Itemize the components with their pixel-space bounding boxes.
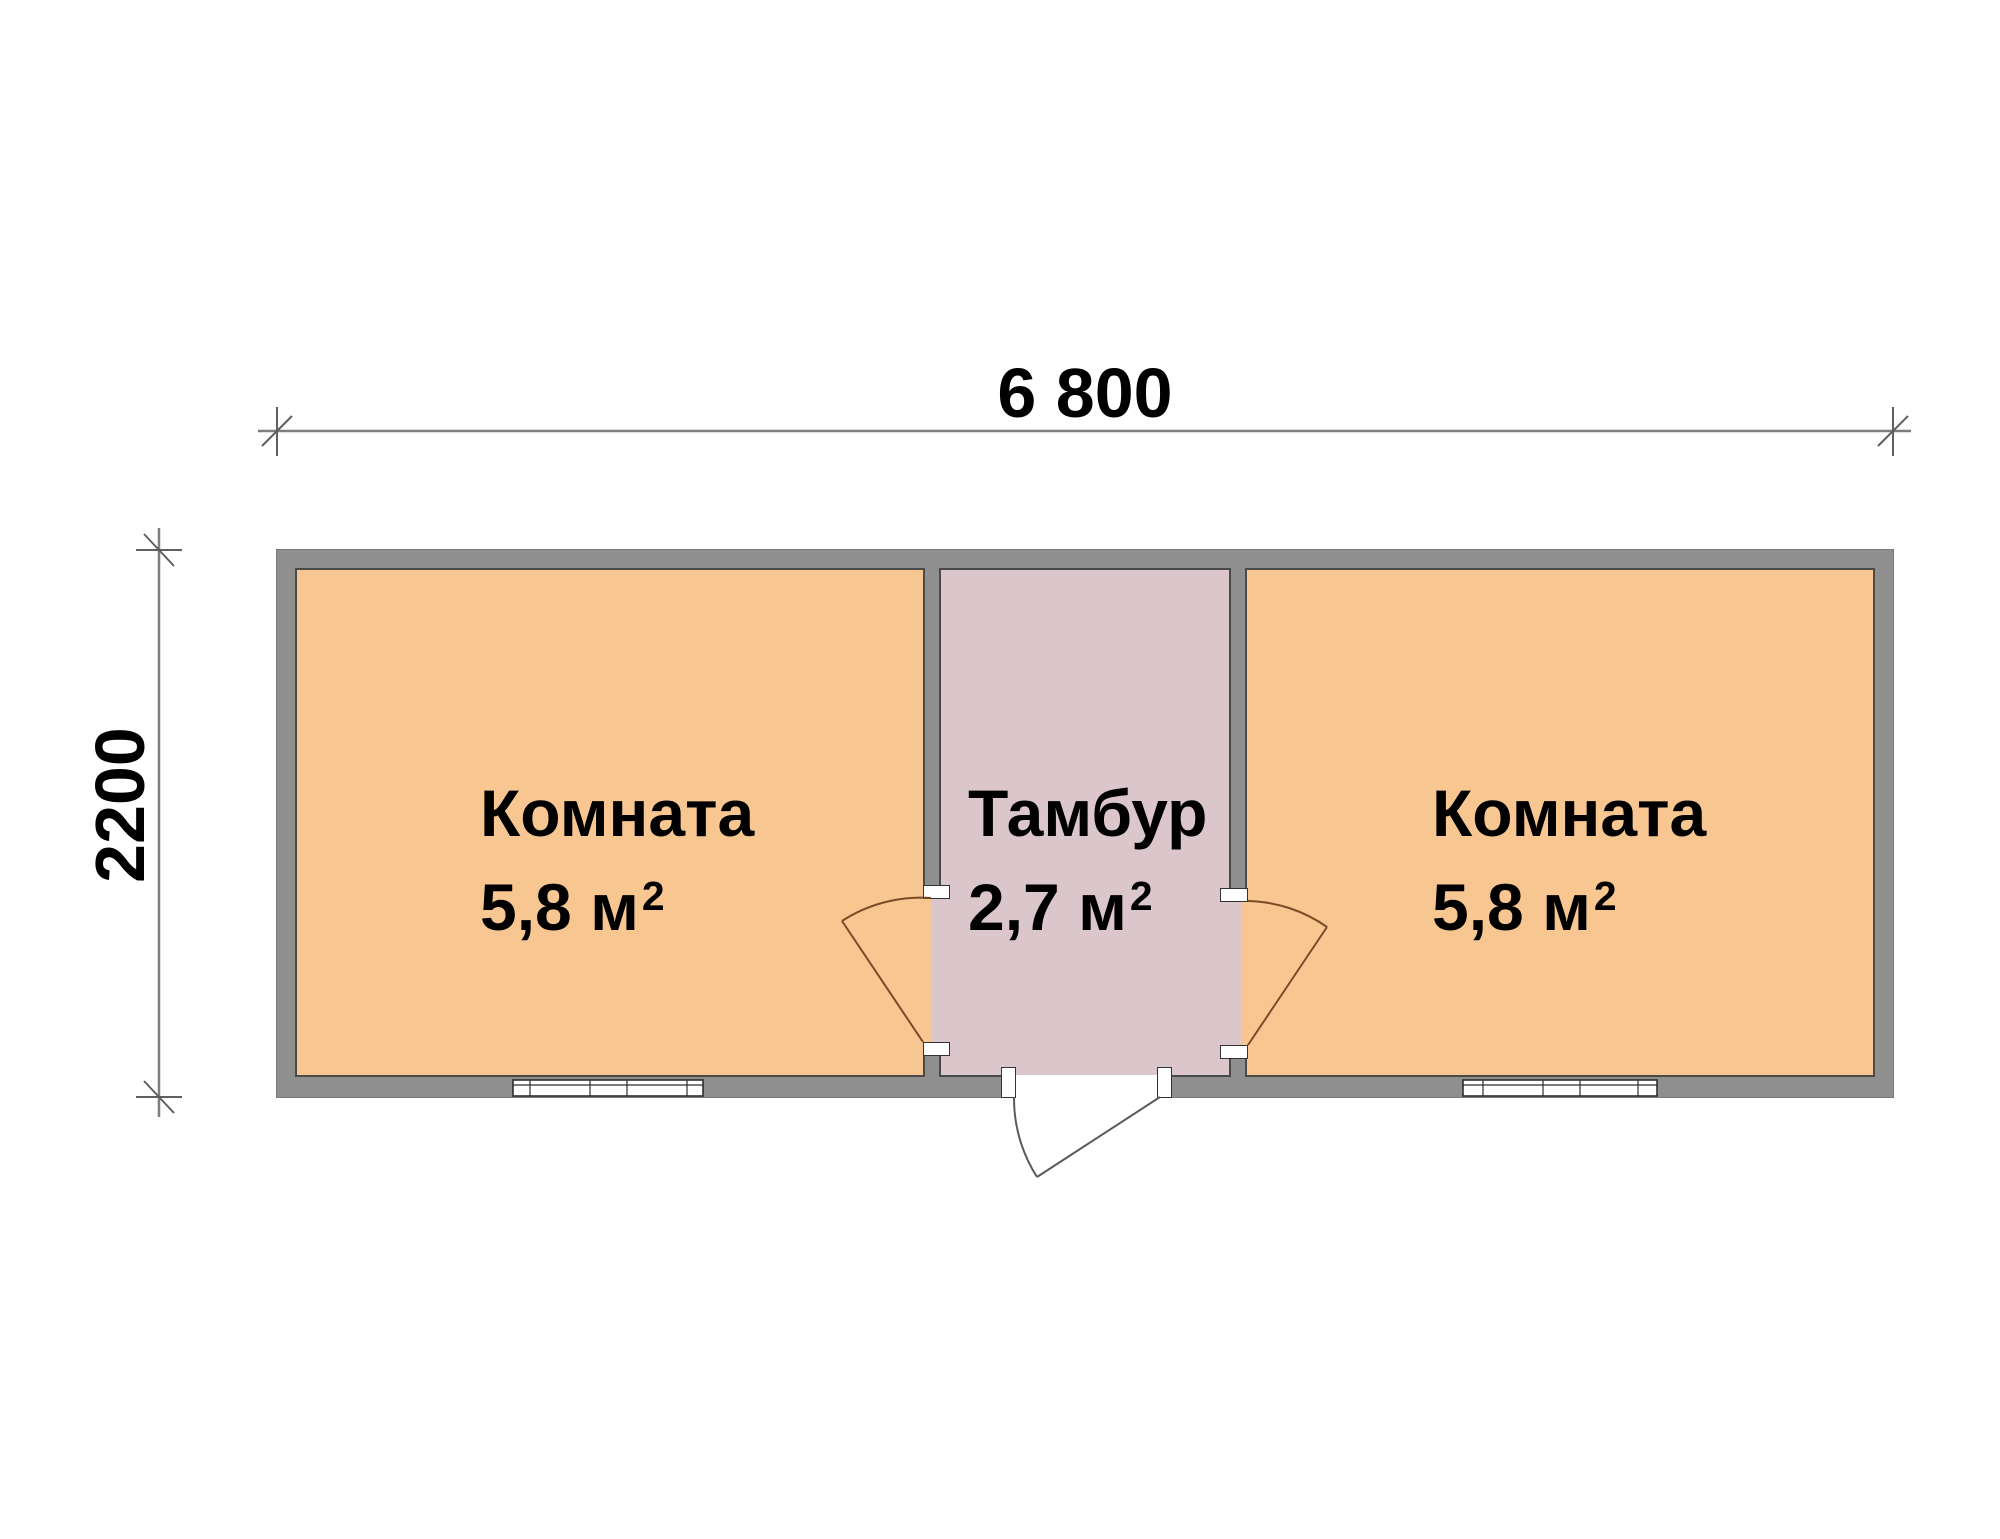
- room-area: 5,8 м2: [1432, 874, 1617, 940]
- square-meter-superscript: 2: [642, 873, 665, 919]
- door-jamb: [1220, 888, 1248, 902]
- room-label-right: Комната 5,8 м2: [1432, 780, 1706, 940]
- door-jamb: [1220, 1045, 1248, 1059]
- doorway-left: [921, 898, 943, 1042]
- doorway-entrance: [1016, 1075, 1157, 1098]
- door-jamb: [923, 885, 950, 899]
- door-swing-arc: [1014, 1097, 1037, 1177]
- room-area: 5,8 м2: [480, 874, 665, 940]
- room-name: Комната: [480, 780, 754, 846]
- door-jamb: [1157, 1067, 1172, 1098]
- door-jamb: [1001, 1067, 1016, 1098]
- door-jamb: [923, 1042, 950, 1056]
- floor-plan: Комната 5,8 м2 Тамбур 2,7 м2 Комната 5,8…: [0, 0, 2000, 1539]
- room-name: Комната: [1432, 780, 1706, 846]
- room-label-left: Комната 5,8 м2: [480, 780, 754, 940]
- room-name: Тамбур: [968, 780, 1207, 846]
- square-meter-superscript: 2: [1130, 873, 1153, 919]
- room-label-vestibule: Тамбур 2,7 м2: [968, 780, 1207, 940]
- square-meter-superscript: 2: [1594, 873, 1617, 919]
- room-area: 2,7 м2: [968, 874, 1153, 940]
- entrance-door: [1014, 1097, 1160, 1177]
- left-dimension-label: 2200: [85, 727, 155, 883]
- doorway-right: [1229, 901, 1251, 1045]
- door-leaf: [1037, 1097, 1160, 1177]
- top-dimension-label: 6 800: [997, 358, 1172, 428]
